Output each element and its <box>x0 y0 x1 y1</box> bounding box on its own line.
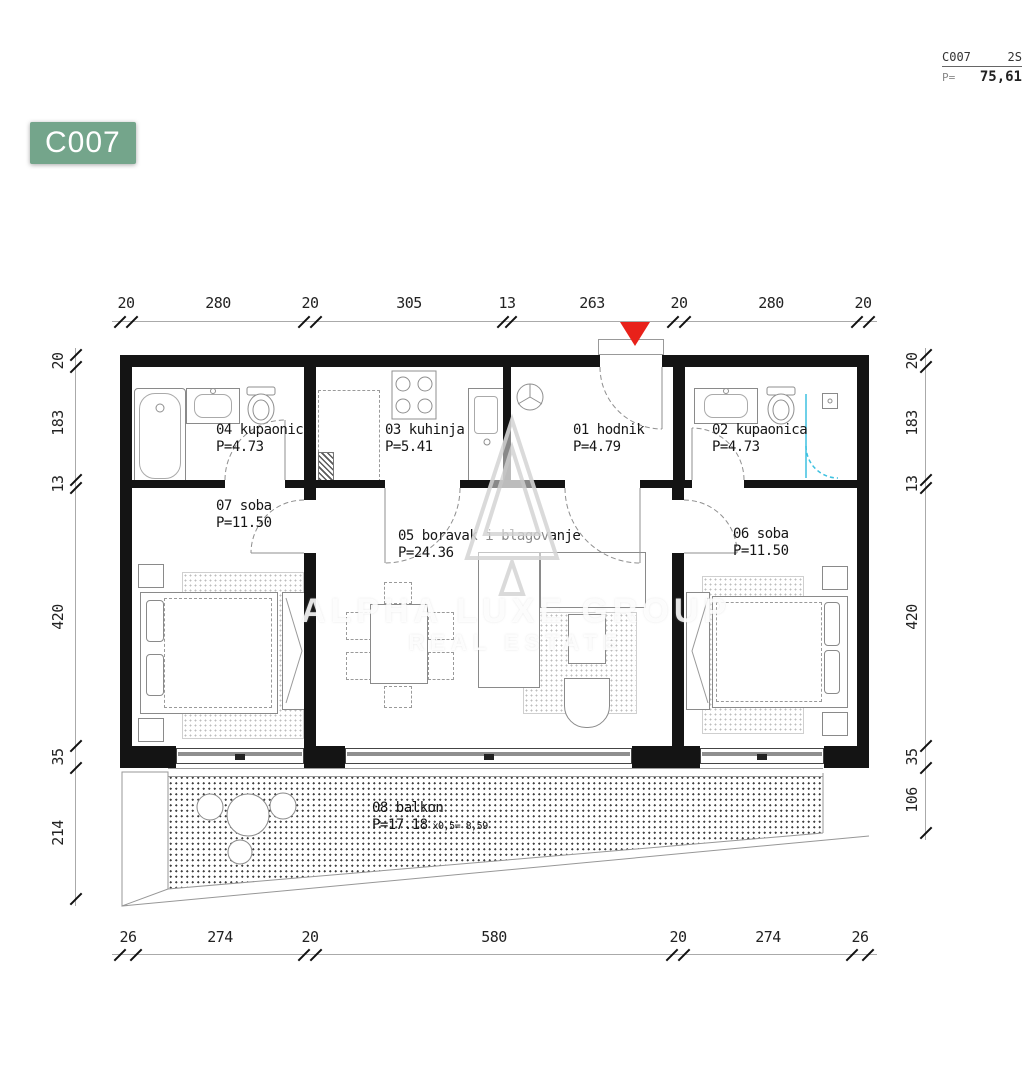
dining-chair <box>428 652 454 680</box>
room-label-kupaonica-02: 02 kupaonica P=4.73 <box>712 422 807 456</box>
dim-label: 274 <box>207 928 233 946</box>
room-area: P=11.50 <box>216 515 272 532</box>
room-name: 03 kuhinja <box>385 422 464 439</box>
dim-label: 183 <box>49 410 67 436</box>
balcony-floor <box>168 775 823 891</box>
bed-mattress <box>716 602 822 702</box>
shower-drain <box>822 393 838 409</box>
dim-label: 35 <box>49 748 67 765</box>
dimension-tick <box>862 948 875 961</box>
unit-code: C007 <box>942 50 971 64</box>
balcony-sill <box>168 768 823 777</box>
dim-label: 280 <box>205 294 231 312</box>
wall-segment <box>304 355 316 480</box>
boiler-icon <box>517 384 543 410</box>
dimension-tick <box>863 315 876 328</box>
room-name: 07 soba <box>216 498 272 515</box>
toilet-icon <box>247 387 275 424</box>
dimension-tick <box>846 948 859 961</box>
title-block: C007 2S P= 75,61 <box>942 50 1022 85</box>
wall-segment <box>120 355 600 367</box>
room-name: 05 boravak i blagovanje <box>398 528 580 545</box>
bed-mattress <box>164 598 272 708</box>
room-label-boravak-05: 05 boravak i blagovanje P=24.36 <box>398 528 580 562</box>
kitchen-sink <box>474 396 498 434</box>
wall-segment <box>460 480 565 488</box>
room-name: 08 balkon <box>372 800 488 817</box>
dimension-tick <box>298 948 311 961</box>
dimension-tick <box>310 315 323 328</box>
dim-label: 35 <box>903 748 921 765</box>
dim-label: 20 <box>301 928 318 946</box>
unit-type: 2S <box>1008 50 1022 64</box>
room-label-kuhinja-03: 03 kuhinja P=5.41 <box>385 422 464 456</box>
area-value: 75,61 <box>980 69 1022 85</box>
dim-label: 420 <box>903 604 921 630</box>
dimension-line-left <box>75 348 76 906</box>
dimension-tick <box>679 315 692 328</box>
toilet-icon <box>767 387 795 424</box>
dim-label: 305 <box>396 294 422 312</box>
room-area: P=24.36 <box>398 545 580 562</box>
wall-segment <box>673 355 685 480</box>
wall-segment <box>857 355 869 768</box>
dimension-line-top <box>112 321 877 322</box>
dining-chair <box>384 686 412 708</box>
area-label: P= <box>942 71 955 84</box>
dim-label: 214 <box>49 820 67 846</box>
wall-segment <box>285 480 385 488</box>
dim-label: 20 <box>854 294 871 312</box>
window-bedroom-06 <box>700 748 824 764</box>
dimension-tick <box>919 349 932 362</box>
dimension-tick <box>126 315 139 328</box>
wall-segment <box>744 480 869 488</box>
dim-label: 13 <box>903 475 921 492</box>
dimension-line-right <box>925 348 926 840</box>
wall-segment <box>632 746 700 768</box>
dim-label: 20 <box>301 294 318 312</box>
room-label-hodnik-01: 01 hodnik P=4.79 <box>573 422 644 456</box>
dimension-tick <box>851 315 864 328</box>
dimension-tick <box>666 948 679 961</box>
dim-label: 183 <box>903 410 921 436</box>
pillow <box>146 600 164 642</box>
dimension-tick <box>69 361 82 374</box>
wall-segment <box>120 355 132 768</box>
wall-segment <box>304 746 345 768</box>
dimension-tick <box>114 315 127 328</box>
wall-segment <box>503 355 511 480</box>
dim-label: 20 <box>49 352 67 369</box>
floorplan-page: C007 2S P= 75,61 C007 20 280 20 305 13 2… <box>0 0 1034 1080</box>
nightstand <box>138 718 164 742</box>
room-area: P=5.41 <box>385 439 464 456</box>
room-area: P=4.79 <box>573 439 644 456</box>
wall-segment <box>120 746 176 768</box>
window-living <box>345 748 632 764</box>
room-area: P=4.73 <box>712 439 807 456</box>
room-area: P=11.50 <box>733 543 789 560</box>
wall-segment <box>304 553 316 746</box>
title-block-row-unit: C007 2S <box>942 50 1022 67</box>
pillow <box>146 654 164 696</box>
dim-label: 20 <box>903 352 921 369</box>
dining-chair <box>346 652 372 680</box>
dim-label: 26 <box>851 928 868 946</box>
wall-segment <box>824 746 869 768</box>
entrance-arrow-icon <box>620 322 650 346</box>
room-label-soba-07: 07 soba P=11.50 <box>216 498 272 532</box>
wall-segment <box>672 553 684 746</box>
pillow <box>824 602 840 646</box>
dim-label: 263 <box>579 294 605 312</box>
dimension-tick <box>919 827 932 840</box>
dim-label: 26 <box>119 928 136 946</box>
dimension-tick <box>69 762 82 775</box>
dim-label: 106 <box>903 787 921 813</box>
watermark-subtext: REAL ESTATE <box>408 630 623 656</box>
dimension-tick <box>919 762 932 775</box>
nightstand <box>822 712 848 736</box>
dim-label: 420 <box>49 604 67 630</box>
room-label-kupaonica-04: 04 kupaonica P=4.73 <box>216 422 311 456</box>
dimension-tick <box>298 315 311 328</box>
dimension-tick <box>919 740 932 753</box>
dim-label: 580 <box>481 928 507 946</box>
pillow <box>824 650 840 694</box>
watermark-text: ALPHA LUXE GROUP <box>301 592 731 631</box>
sink-basin <box>194 394 232 418</box>
dimension-tick <box>678 948 691 961</box>
room-area-factor: x0,5= 8,59 <box>433 821 488 832</box>
window-bedroom-07 <box>176 748 304 764</box>
room-area: P=17.18 <box>372 817 428 833</box>
unit-badge: C007 <box>30 122 136 164</box>
bathtub-inner <box>139 393 181 479</box>
room-name: 01 hodnik <box>573 422 644 439</box>
dim-label: 13 <box>49 475 67 492</box>
title-block-row-area: P= 75,61 <box>942 67 1022 85</box>
dimension-tick <box>114 948 127 961</box>
dimension-tick <box>69 349 82 362</box>
dimension-tick <box>130 948 143 961</box>
dimension-line-bottom <box>112 954 877 955</box>
room-name: 02 kupaonica <box>712 422 807 439</box>
wall-segment <box>304 488 316 500</box>
room-name: 04 kupaonica <box>216 422 311 439</box>
room-area: P=4.73 <box>216 439 311 456</box>
nightstand <box>822 566 848 590</box>
dim-label: 274 <box>755 928 781 946</box>
room-label-balkon-08: 08 balkon P=17.18x0,5= 8,59 <box>372 800 488 835</box>
wall-segment <box>672 488 684 500</box>
dimension-tick <box>919 361 932 374</box>
dim-label: 20 <box>669 928 686 946</box>
wall-segment <box>640 480 692 488</box>
wall-segment <box>120 480 225 488</box>
room-name: 06 soba <box>733 526 789 543</box>
armchair <box>564 678 610 728</box>
dimension-tick <box>69 740 82 753</box>
stove-icon <box>392 371 436 419</box>
dim-label: 280 <box>758 294 784 312</box>
dim-label: 20 <box>670 294 687 312</box>
nightstand <box>138 564 164 588</box>
dimension-tick <box>69 893 82 906</box>
room-label-soba-06: 06 soba P=11.50 <box>733 526 789 560</box>
dimension-tick <box>310 948 323 961</box>
sink-basin <box>704 394 748 418</box>
wall-segment <box>662 355 869 367</box>
dim-label: 13 <box>498 294 515 312</box>
dim-label: 20 <box>117 294 134 312</box>
dimension-tick <box>667 315 680 328</box>
